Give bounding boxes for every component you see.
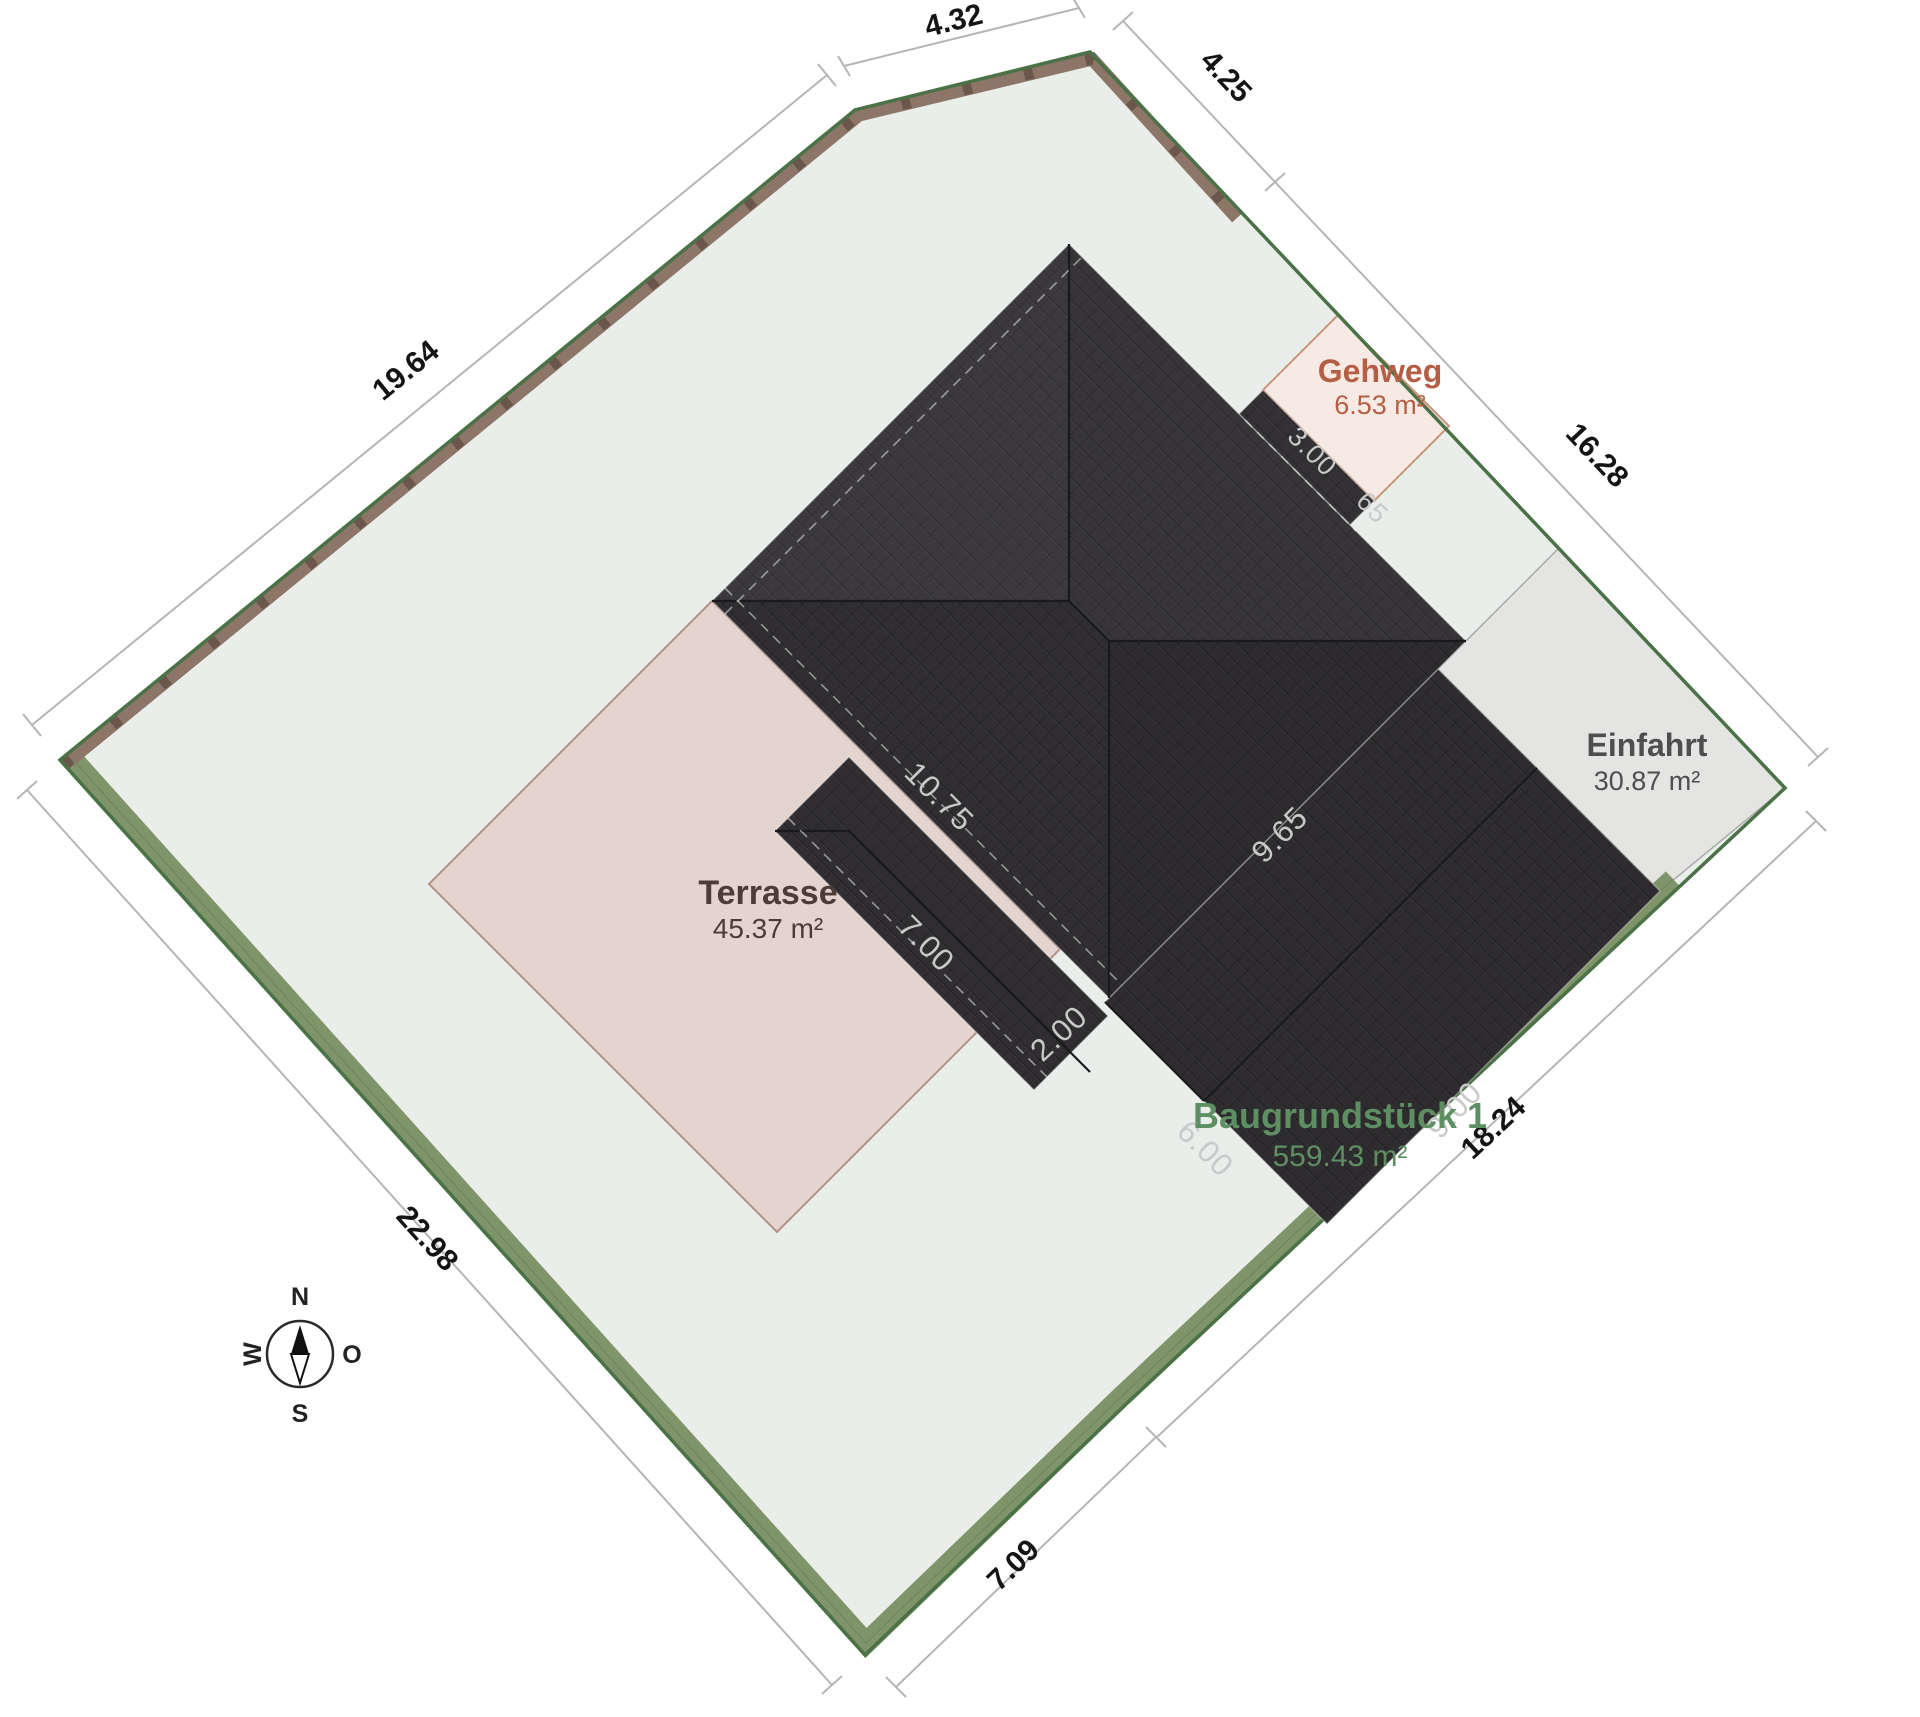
dimension-label-northeast: 16.28: [1559, 417, 1635, 494]
compass-south-label: S: [292, 1400, 309, 1428]
compass-needle-north: [291, 1325, 309, 1354]
compass-needle-south: [291, 1354, 309, 1383]
gehweg-area: 6.53 m²: [1334, 390, 1426, 420]
baugrundstueck-label: Baugrundstück 1: [1193, 1095, 1487, 1136]
dimension-label-southwest: 22.98: [390, 1200, 465, 1278]
einfahrt-label: Einfahrt: [1587, 727, 1708, 763]
site-plan-drawing: 4.32 4.25 19.64 16.28 22.98 7.09 18.24 1…: [0, 0, 1920, 1717]
compass-east-label: O: [342, 1341, 361, 1369]
einfahrt-area: 30.87 m²: [1594, 766, 1701, 796]
terrasse-label: Terrasse: [698, 874, 837, 912]
dimension-label-top-right: 4.25: [1194, 44, 1258, 109]
dimension-label-south: 7.09: [981, 1533, 1046, 1597]
site-plan-canvas: 4.32 4.25 19.64 16.28 22.98 7.09 18.24 1…: [0, 0, 1920, 1717]
terrasse-area: 45.37 m²: [713, 913, 824, 944]
compass-north-label: N: [291, 1283, 309, 1311]
dimension-label-top-left: 4.32: [921, 0, 986, 44]
baugrundstueck-area: 559.43 m²: [1272, 1140, 1407, 1173]
gehweg-label: Gehweg: [1318, 353, 1442, 389]
compass-west-label: W: [239, 1342, 267, 1366]
compass-rose: N S O W: [239, 1283, 362, 1428]
